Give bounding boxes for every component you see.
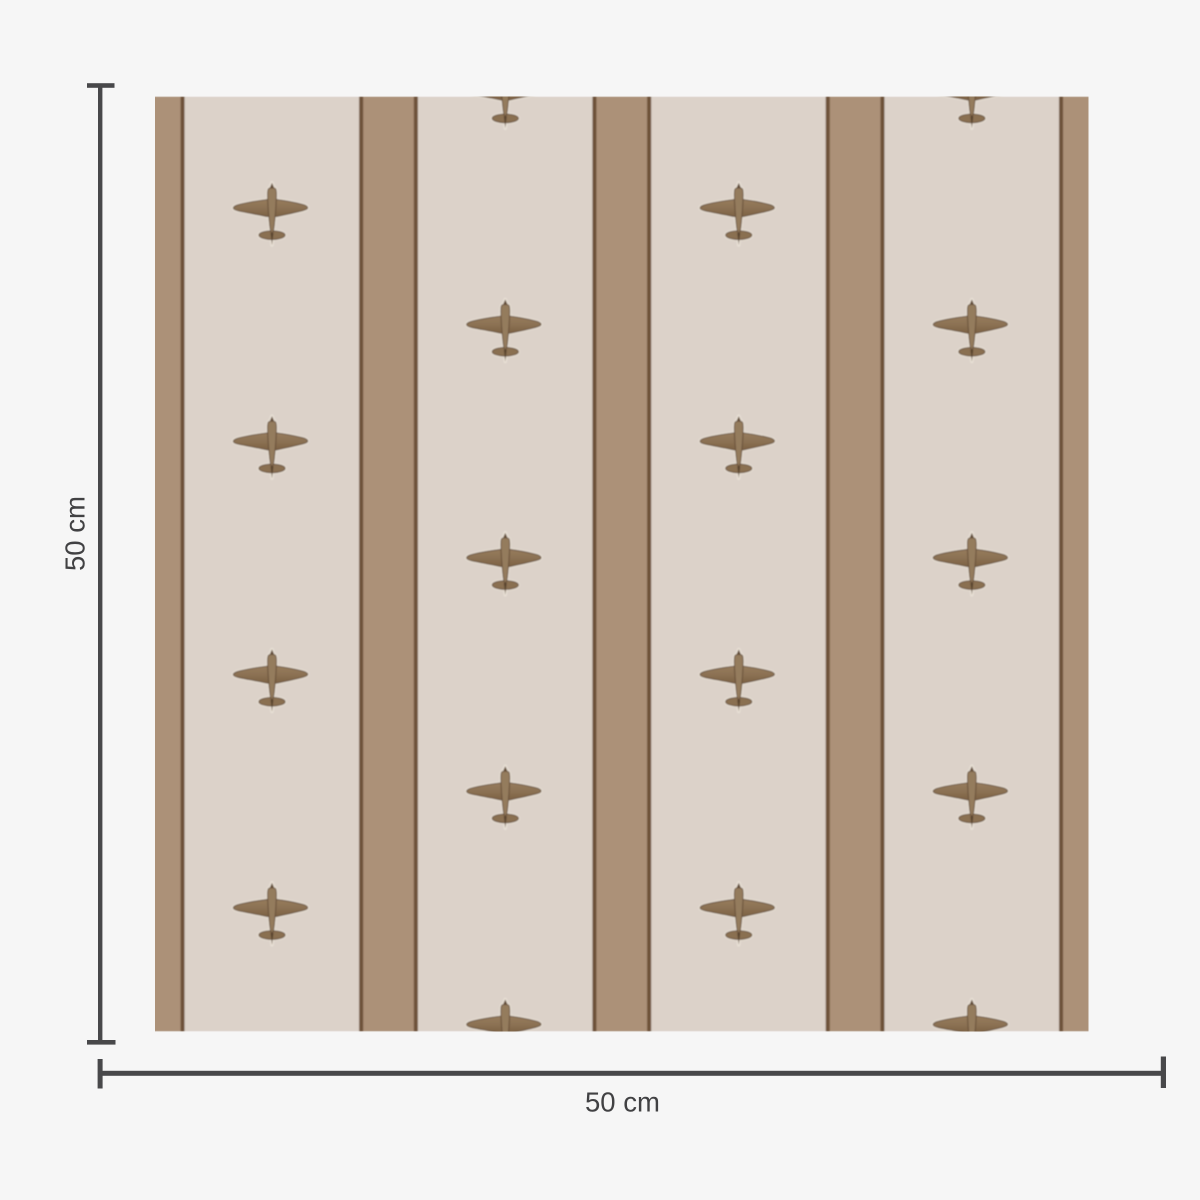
svg-text:50 cm: 50 cm (585, 1087, 660, 1118)
svg-text:50 cm: 50 cm (60, 496, 91, 571)
